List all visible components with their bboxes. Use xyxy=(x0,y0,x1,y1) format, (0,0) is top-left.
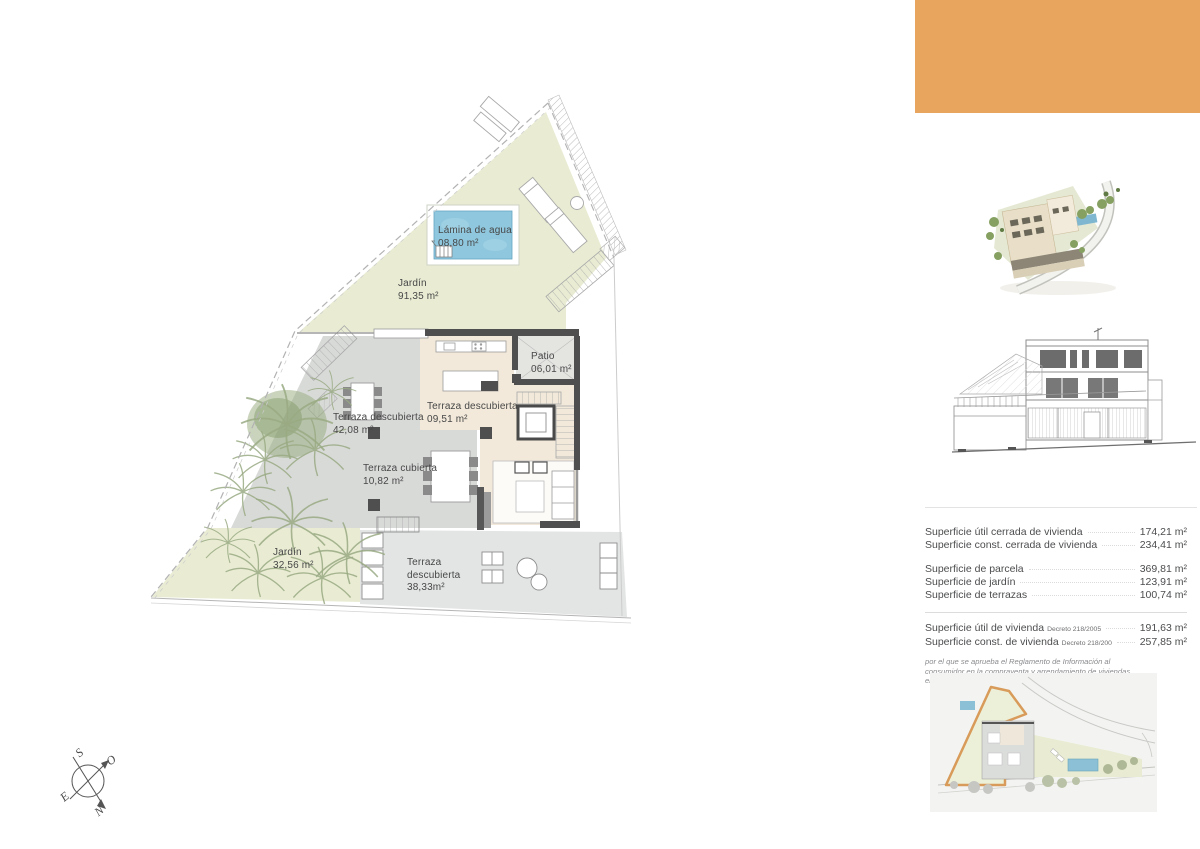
table-row: Superficie const. cerrada de vivienda 23… xyxy=(925,539,1187,552)
living-room xyxy=(493,461,574,523)
table-row: Superficie const. de vivienda Decreto 21… xyxy=(925,636,1187,650)
table-row: Superficie de jardín 123,91 m² xyxy=(925,576,1187,589)
table-row: Superficie útil cerrada de vivienda 174,… xyxy=(925,526,1187,539)
terrace-covered-label: Terraza cubierta10,82 m² xyxy=(363,463,437,488)
compass-s: S xyxy=(72,745,86,760)
compass-e: E xyxy=(56,788,72,805)
aerial-render-thumbnail xyxy=(978,170,1138,310)
pool-label: Lámina de agua08,80 m² xyxy=(438,225,512,250)
orange-banner xyxy=(915,0,1200,113)
compass-rose: S O E N xyxy=(48,740,123,820)
brochure-page: Lámina de agua08,80 m² Jardín91,35 m² Pa… xyxy=(0,0,1200,849)
planter xyxy=(374,329,428,338)
elevation-drawing xyxy=(948,320,1200,465)
table-divider xyxy=(925,612,1187,613)
garden-top-label: Jardín91,35 m² xyxy=(398,278,439,303)
terrace-bottom-label: Terraza descubierta 38,33m² xyxy=(407,557,460,595)
terrace-left-label: Terraza descubierta42,08 m² xyxy=(333,412,424,437)
table-row: Superficie útil de vivienda Decreto 218/… xyxy=(925,622,1187,636)
garden-bottom-label: Jardín32,56 m² xyxy=(273,547,314,572)
table-row: Superficie de terrazas 100,74 m² xyxy=(925,589,1187,602)
patio-label: Patio06,01 m² xyxy=(531,351,572,376)
compass-n: N xyxy=(91,802,108,819)
table-row: Superficie de parcela 369,81 m² xyxy=(925,563,1187,576)
terrace-center-label: Terraza descubierta09,51 m² xyxy=(427,401,518,426)
siteplan-thumbnail xyxy=(930,673,1157,812)
areas-table: Superficie útil cerrada de vivienda 174,… xyxy=(925,507,1197,686)
